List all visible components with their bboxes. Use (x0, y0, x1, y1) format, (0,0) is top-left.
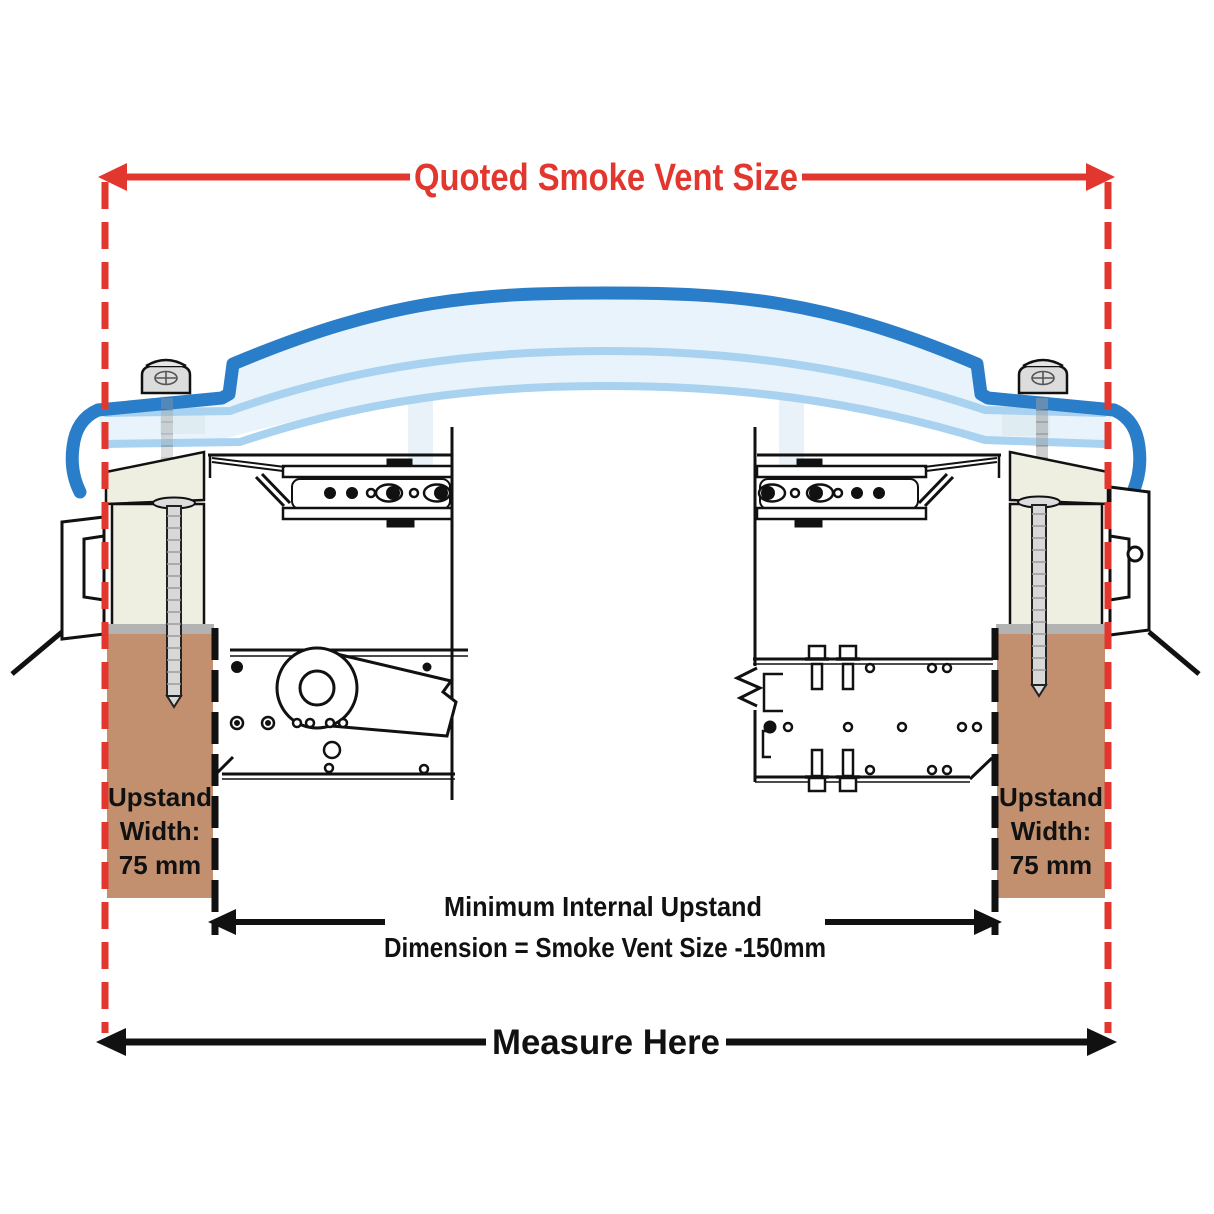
bolt (805, 750, 860, 791)
right-screw-cap (1019, 360, 1067, 393)
actuator-arm (277, 648, 456, 736)
internal-dimension-label-line1: Minimum Internal Upstand (444, 891, 762, 922)
right-upstand-label-2: Width: (1011, 816, 1092, 846)
right-upstand-label-1: Upstand (999, 782, 1103, 812)
left-upstand-wall: Upstand Width: 75 mm (104, 624, 214, 898)
right-upstand-label-3: 75 mm (1010, 850, 1092, 880)
right-roof-line (1149, 632, 1199, 674)
quoted-size-dimension: Quoted Smoke Vent Size (98, 157, 1115, 199)
right-frame-assembly (737, 427, 1001, 791)
glazing-fill (98, 293, 1112, 446)
left-upstand-label-1: Upstand (108, 782, 212, 812)
left-screw-cap (142, 360, 190, 393)
quoted-size-label: Quoted Smoke Vent Size (414, 157, 798, 199)
hinge-eye (1128, 547, 1142, 561)
internal-upstand-dimension: Minimum Internal Upstand Dimension = Smo… (208, 891, 1002, 963)
right-kerb-cap-gray (996, 624, 1108, 634)
left-frame-assembly (208, 427, 468, 800)
internal-dimension-label-line2: Dimension = Smoke Vent Size -150mm (384, 932, 826, 963)
left-upstand-label-3: 75 mm (119, 850, 201, 880)
right-upstand-wall: Upstand Width: 75 mm (996, 624, 1108, 898)
diagram-canvas: Upstand Width: 75 mm Upstand Width: 75 m… (0, 0, 1214, 1214)
smoke-vent-cross-section-diagram: Upstand Width: 75 mm Upstand Width: 75 m… (0, 0, 1214, 1214)
left-kerb-cap-gray (104, 624, 214, 634)
measure-here-dimension: Measure Here (96, 1023, 1117, 1062)
left-upstand-label-2: Width: (120, 816, 201, 846)
measure-here-label: Measure Here (492, 1023, 720, 1062)
arrowhead-right (1087, 1028, 1117, 1056)
left-roof-line (12, 632, 62, 674)
bolt (805, 646, 860, 689)
arrowhead-left (96, 1028, 126, 1056)
